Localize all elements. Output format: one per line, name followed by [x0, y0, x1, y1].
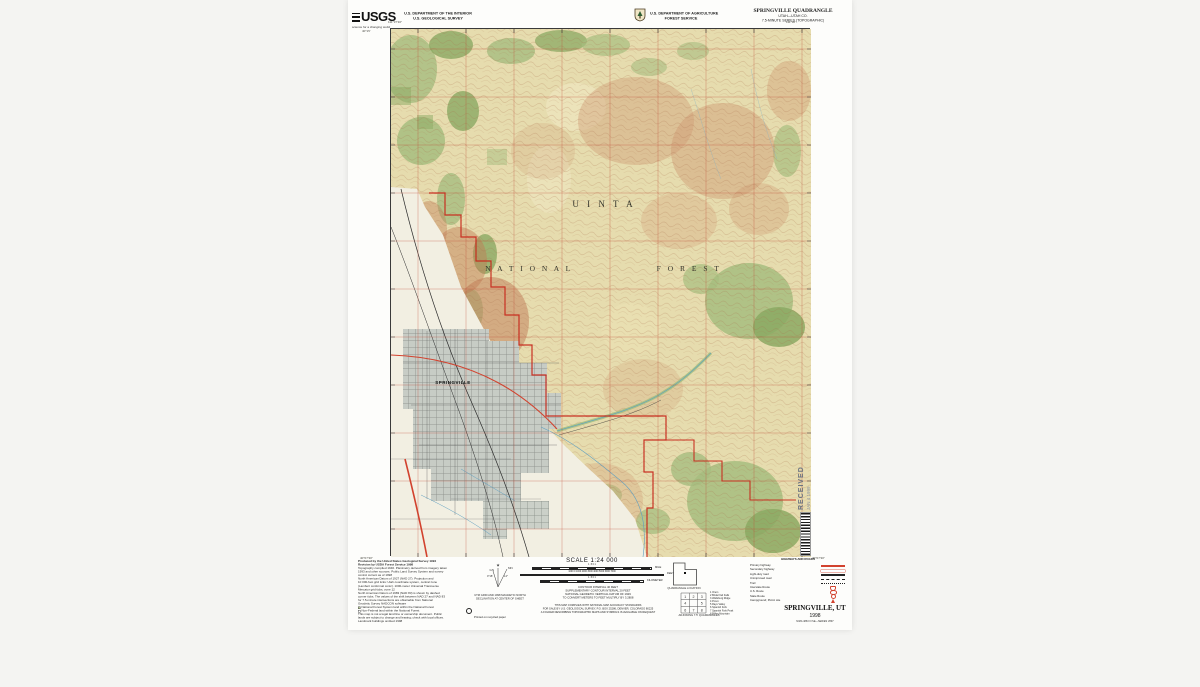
topo-map: U I N T A N A T I O N A L F O R E S T SP… [390, 28, 810, 556]
sale-note: THIS MAP COMPLIES WITH NATIONAL MAP ACCU… [525, 604, 671, 625]
recycle-icon [466, 608, 472, 614]
legend-label: Campground; Picnic site [750, 599, 820, 602]
adj-grid-num: 1 [684, 595, 686, 599]
received-stamp-date: JAN 4 1999 [806, 450, 811, 510]
city-label-springville: SPRINGVILLE [435, 380, 471, 385]
legend-label: U.S. Route [750, 590, 820, 593]
adj-grid-num: 4 [684, 602, 686, 606]
corner-nw-lat: 40°15' [362, 30, 388, 33]
sheet-year: 1998 [768, 613, 862, 619]
unimproved-road-swatch [821, 579, 845, 580]
legend-label: State Route [750, 595, 820, 598]
gn-angle: 0°18' [487, 574, 493, 578]
true-north-star-icon: ★ [496, 563, 500, 568]
legend-label: Primary highway [750, 564, 820, 567]
declination-diagram: ★ GN MN 0°18' 14° [476, 561, 520, 591]
trail-swatch [821, 583, 845, 584]
light-duty-road-swatch [821, 574, 845, 576]
forest-service-shield-icon [634, 8, 646, 22]
quad-title: SPRINGVILLE QUADRANGLE [741, 7, 845, 14]
scale-km-numbers: 1 .5 0 1 [540, 576, 644, 579]
gn-label: GN [490, 568, 495, 572]
forest-label-national: N A T I O N A L [485, 264, 572, 273]
map-sheet: USGS science for a changing world U.S. D… [348, 0, 852, 630]
usda-line2: FOREST SERVICE [650, 16, 712, 21]
campground-marker-icon [831, 599, 835, 603]
adj-grid-num: 6 [684, 608, 686, 612]
corner-ne-lon: 111°30' [786, 21, 814, 24]
credit-line: Landmark buildings omitted 1998 [358, 620, 476, 624]
usgs-logo-bars-icon [352, 13, 360, 22]
utah-state-outline [672, 562, 698, 586]
received-stamp-text: RECEIVED [798, 450, 805, 510]
mn-angle: 14° [504, 574, 508, 578]
corner-nw-lon: 111°37'30" [388, 21, 420, 24]
declination-caption-2: DECLINATION AT CENTER OF SHEET [456, 597, 544, 600]
scale-feet-numbers: 1000 0 1000 2000 3000 4000 5000 6000 700… [520, 570, 664, 573]
adj-grid-num: 2 [693, 595, 695, 599]
road-legend: HIGHWAYS AND ROADS Primary highway Secon… [750, 558, 846, 604]
sheet-name: SPRINGVILLE, UT [768, 604, 862, 612]
adj-grid-num: 7 [693, 608, 695, 612]
sheet-title-block: SPRINGVILLE, UT 1998 NIMA 4863 III SE—SE… [768, 604, 862, 625]
received-stamp: RECEIVED JAN 4 1999 [798, 450, 811, 510]
legend-label: Light-duty road [750, 573, 820, 576]
mn-label: MN [508, 566, 513, 570]
adj-grid-num: 8 [701, 608, 703, 612]
legend-label: Trail [750, 582, 820, 585]
adjoining-quad-grid: 1 2 3 4 5 6 7 8 [680, 592, 707, 614]
sheet-series: NIMA 4863 III SE—SERIES V897 [768, 620, 862, 623]
nf-land-swatch [358, 607, 361, 610]
barcode [800, 512, 811, 556]
adj-grid-num: 3 [701, 595, 703, 599]
forest-label-forest: F O R E S T [657, 264, 722, 273]
primary-highway-swatch [821, 565, 845, 567]
legend-label: Interstate Route [750, 586, 820, 589]
adj-grid-num: 5 [701, 602, 703, 606]
adjoining-caption: ADJOINING 7.5' QUADRANGLES [670, 614, 728, 621]
topo-map-canvas: U I N T A N A T I O N A L F O R E S T SP… [391, 29, 811, 557]
scale-bar-km [540, 580, 644, 583]
secondary-highway-swatch [821, 570, 845, 572]
sale-line: A FOLDER DESCRIBING TOPOGRAPHIC MAPS AND… [525, 611, 671, 614]
contour-line: TO CONVERT METERS TO FEET MULTIPLY BY 3.… [533, 597, 663, 601]
forest-label-uinta: U I N T A [572, 199, 635, 209]
road-legend-title: HIGHWAYS AND ROADS [750, 558, 846, 561]
quad-location-marker [684, 572, 686, 574]
legend-label: Unimproved road [750, 577, 820, 580]
scale-miles-numbers: 1 .5 0 1 [532, 563, 652, 566]
legend-label: Secondary highway [750, 568, 820, 571]
production-credits: Produced by the United States Geological… [358, 560, 476, 687]
